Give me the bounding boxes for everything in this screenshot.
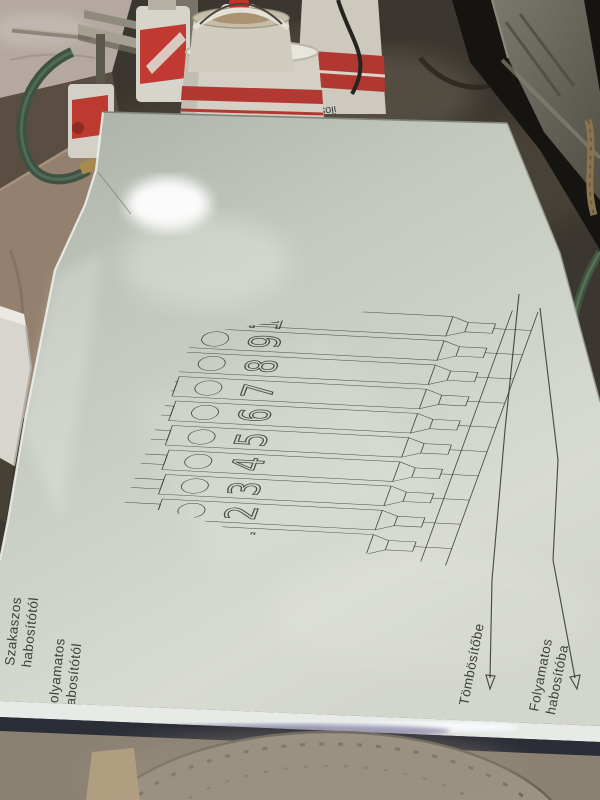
chemical-jug-large [136, 0, 190, 102]
strip-number: 5 [226, 431, 280, 447]
photo-workshop-scene: ilos [0, 0, 600, 800]
strip-number: 7 [233, 382, 287, 398]
strip-number: 8 [236, 358, 290, 374]
strip-number: 3 [219, 480, 273, 496]
strip-number: 2 [216, 505, 270, 521]
specular-glow [120, 217, 290, 307]
strip-number: 4 [223, 456, 277, 472]
beige-floor-patch [86, 748, 140, 800]
label-mark [72, 122, 84, 134]
paint-bucket-small-top [188, 4, 294, 72]
strip-number: 9 [239, 333, 293, 349]
jug-cap [148, 0, 176, 10]
strip-number: 6 [229, 407, 283, 423]
